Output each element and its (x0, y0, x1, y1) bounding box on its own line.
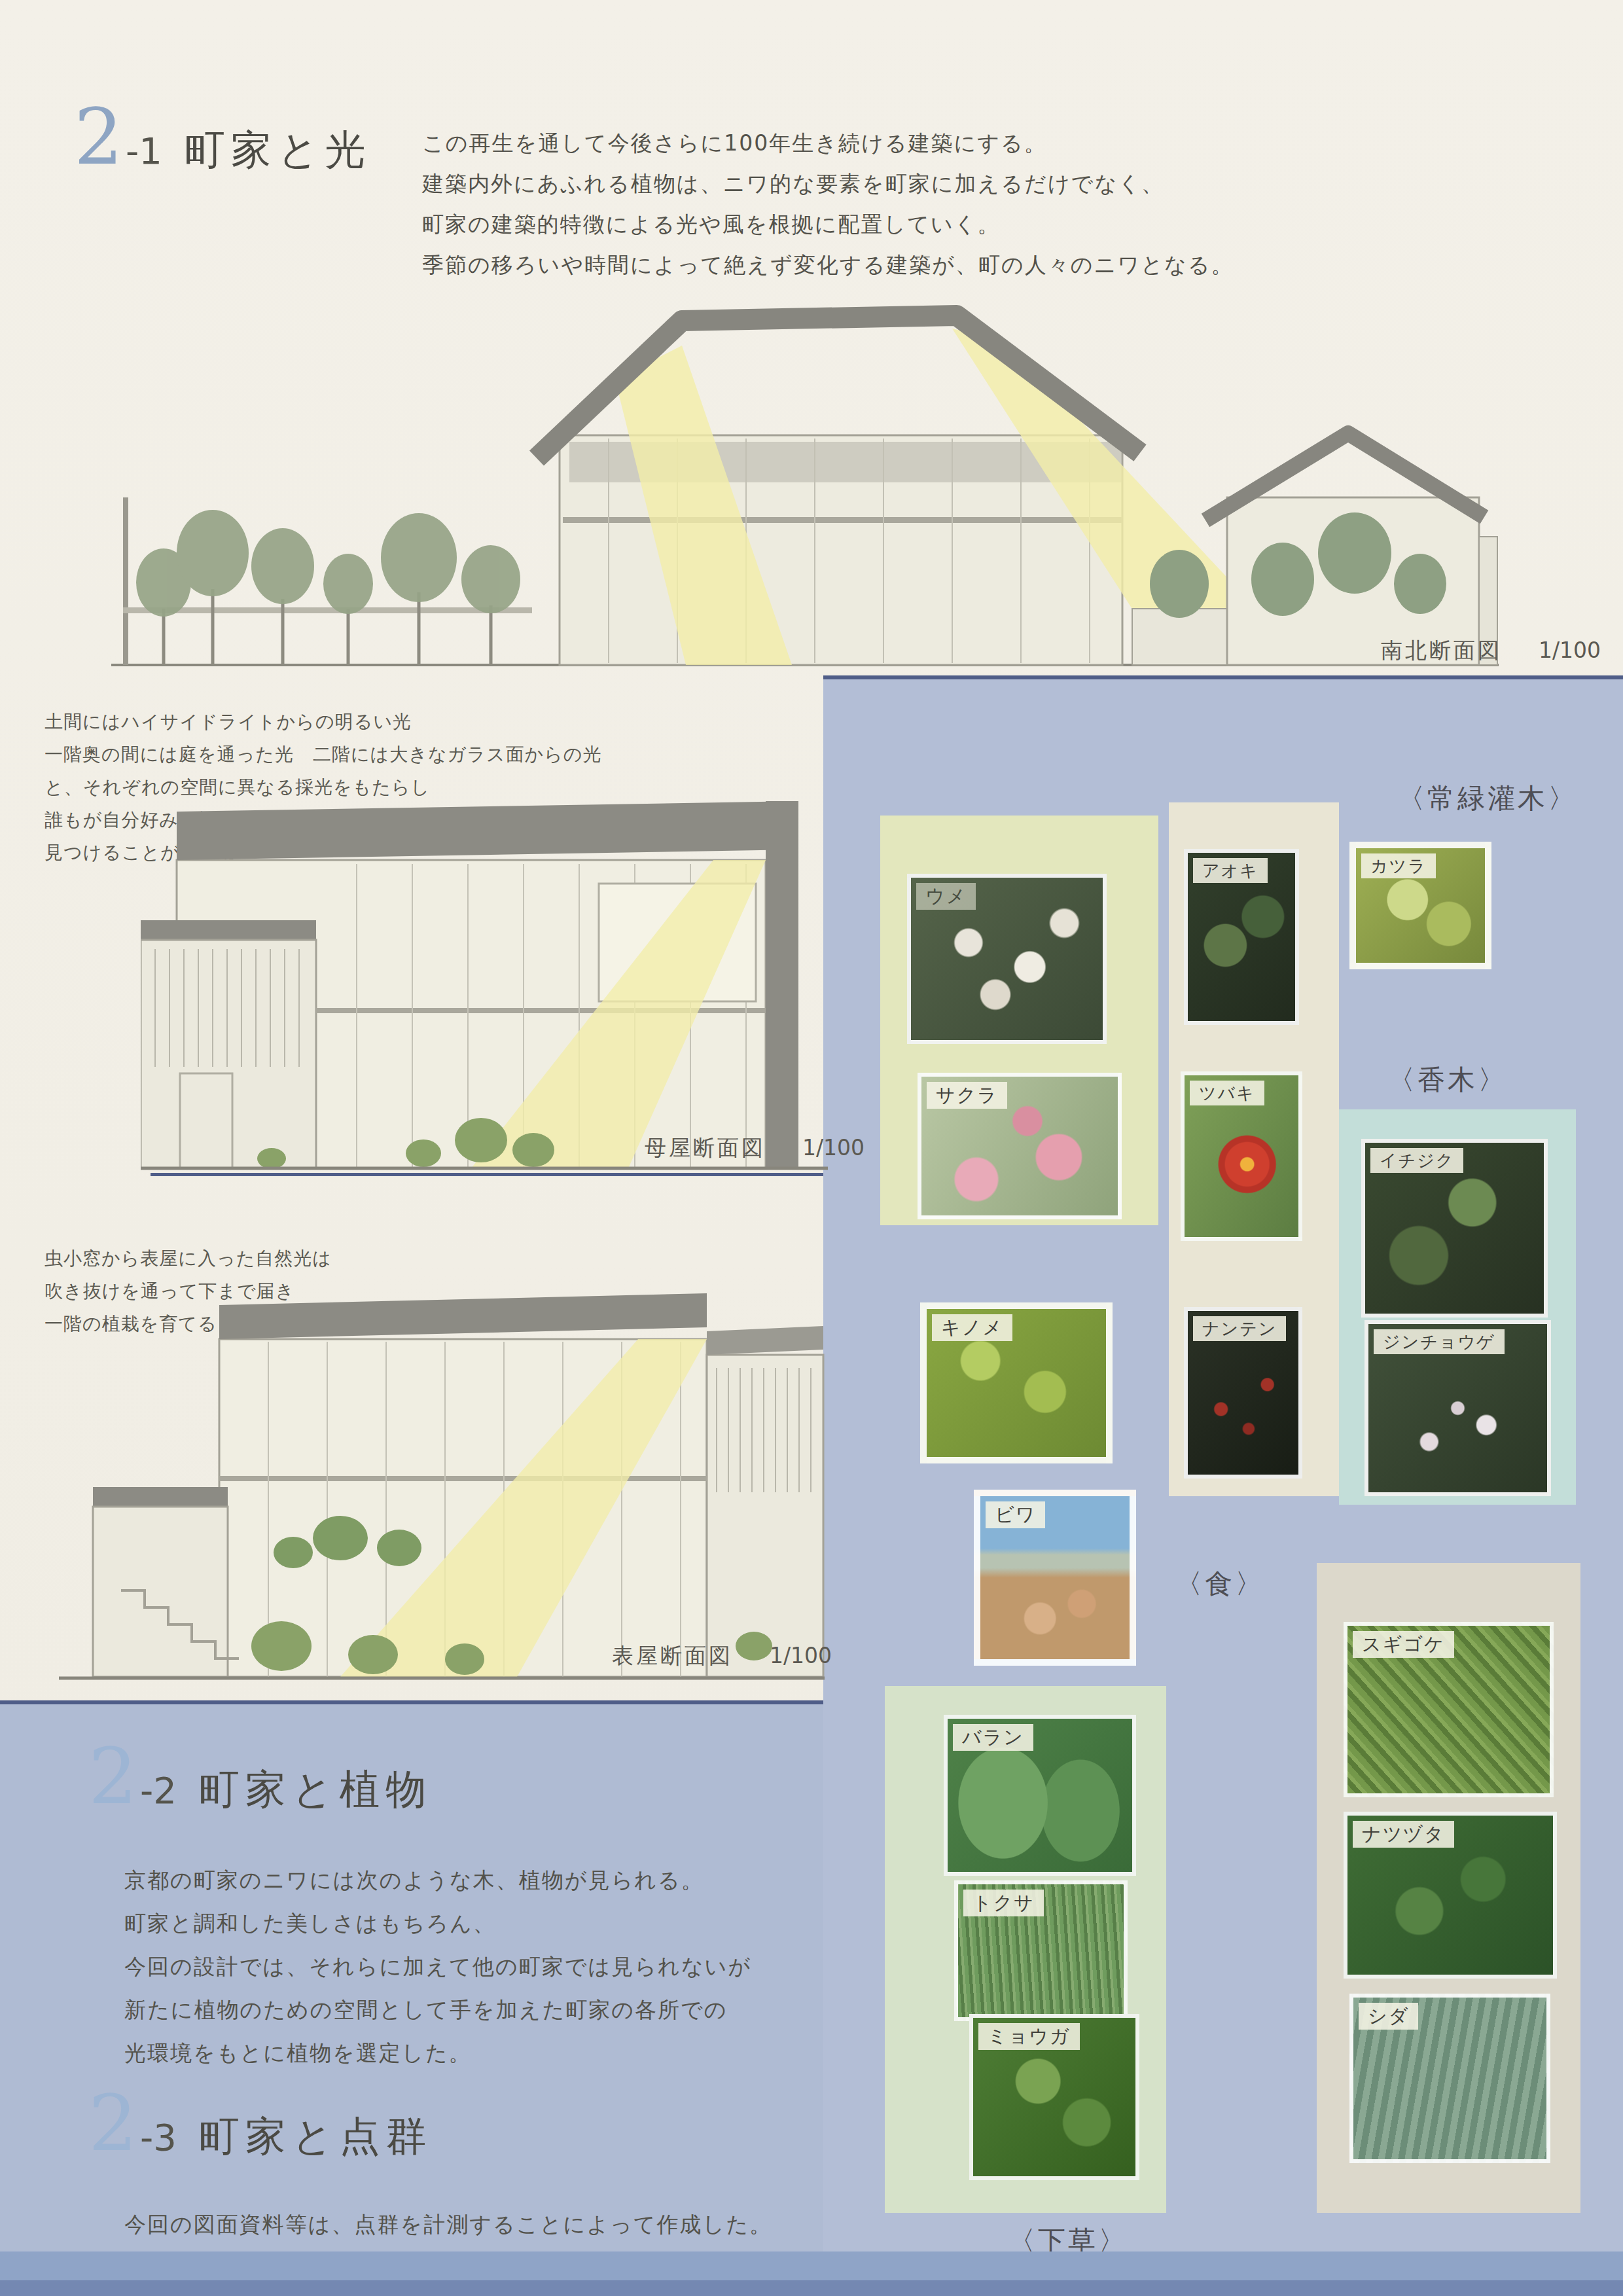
plant-photo-jinchoge: ジンチョウゲ (1364, 1320, 1551, 1496)
section-2-3-body: 今回の図面資料等は、点群を計測することによって作成した。 (124, 2204, 772, 2245)
plant-label: カツラ (1361, 853, 1436, 878)
paragraph-line: この再生を通して今後さらに100年生き続ける建築にする。 (422, 123, 1234, 164)
section-2-1-header: 2 -1 町家と光 (74, 98, 371, 177)
plant-photo-nanten: ナンテン (1184, 1307, 1302, 1479)
section-number-minor: -3 (140, 2116, 177, 2159)
plant-photo-ichijiku: イチジク (1361, 1139, 1548, 1318)
section-2-2-header: 2 -2 町家と植物 (88, 1738, 432, 1817)
caption-scale: 1/100 (1539, 637, 1601, 663)
section-title: 町家と植物 (199, 1762, 432, 1817)
category-fragrant-trees: 〈香木〉 (1387, 1062, 1508, 1098)
section-title: 町家と光 (185, 122, 371, 177)
section-drawing-omoteya (59, 1276, 825, 1702)
presentation-board: 2 -1 町家と光 この再生を通して今後さらに100年生き続ける建築にする。 建… (0, 0, 1623, 2296)
category-food: 〈食〉 (1175, 1566, 1265, 1602)
caption-name: 表屋断面図 (612, 1641, 733, 1671)
plant-label: ビワ (986, 1501, 1045, 1528)
plant-label: イチジク (1370, 1148, 1463, 1173)
plant-photo-sugigoke: スギゴケ (1344, 1622, 1554, 1797)
section-number-minor: -1 (126, 130, 162, 172)
plant-label: サクラ (927, 1082, 1007, 1109)
caption-name: 母屋断面図 (645, 1134, 766, 1163)
caption-scale: 1/100 (770, 1643, 832, 1668)
plant-label: ナツヅタ (1353, 1821, 1454, 1848)
plant-photo-katsura: カツラ (1349, 842, 1491, 969)
paragraph-line: 京都の町家のニワには次のような木、植物が見られる。 (124, 1859, 751, 1902)
paragraph-line: 町家の建築的特徴による光や風を根拠に配置していく。 (422, 204, 1234, 245)
plant-photo-baran: バラン (944, 1715, 1136, 1876)
caption-scale: 1/100 (802, 1135, 865, 1160)
plant-label: ツバキ (1190, 1081, 1264, 1105)
plant-photo-sakura: サクラ (918, 1073, 1122, 1219)
section-2-2-body: 京都の町家のニワには次のような木、植物が見られる。 町家と調和した美しさはもちろ… (124, 1859, 751, 2075)
plant-label: ナンテン (1193, 1316, 1286, 1341)
note-line: 虫小窓から表屋に入った自然光は (45, 1242, 332, 1275)
section-drawing-omoya (141, 792, 828, 1172)
section-number-major: 2 (88, 2085, 137, 2162)
plant-label: ウメ (916, 883, 976, 910)
plant-label: ミョウガ (978, 2023, 1080, 2050)
plant-photo-natsuzuta: ナツヅタ (1344, 1812, 1557, 1979)
plant-label: シダ (1359, 2003, 1418, 2030)
plant-photo-aoki: アオキ (1184, 849, 1299, 1025)
plant-photo-tokusa: トクサ (954, 1880, 1128, 2021)
paragraph-line: 今回の図面資料等は、点群を計測することによって作成した。 (124, 2204, 772, 2245)
drawing-caption-1: 南北断面図 1/100 (1381, 636, 1601, 666)
plant-photo-kinome: キノメ (920, 1302, 1113, 1463)
bottom-blue-strip-dark (0, 2280, 1623, 2296)
note-line: 土間にはハイサイドライトからの明るい光 (45, 706, 602, 738)
plant-photo-tsubaki: ツバキ (1181, 1071, 1302, 1241)
section-number-minor: -2 (140, 1769, 177, 1812)
caption-name: 南北断面図 (1381, 636, 1502, 666)
category-evergreen-shrubs: 〈常緑灌木〉 (1397, 780, 1578, 817)
paragraph-line: 建築内外にあふれる植物は、ニワ的な要素を町家に加えるだけでなく、 (422, 164, 1234, 204)
plant-label: キノメ (932, 1314, 1012, 1341)
drawing-caption-3: 表屋断面図 1/100 (612, 1641, 832, 1671)
section-title: 町家と点群 (199, 2109, 432, 2164)
section-2-3-header: 2 -3 町家と点群 (88, 2085, 432, 2164)
plant-photo-myoga: ミョウガ (969, 2014, 1139, 2180)
drawing-caption-2: 母屋断面図 1/100 (645, 1134, 865, 1163)
paragraph-line: 季節の移ろいや時間によって絶えず変化する建築が、町の人々のニワとなる。 (422, 245, 1234, 285)
plant-photo-shida: シダ (1349, 1994, 1550, 2163)
section-2-1-intro: この再生を通して今後さらに100年生き続ける建築にする。 建築内外にあふれる植物… (422, 123, 1234, 285)
paragraph-line: 今回の設計では、それらに加えて他の町家では見られないが (124, 1945, 751, 1988)
plant-photo-biwa: ビワ (974, 1490, 1136, 1666)
plant-label: スギゴケ (1353, 1631, 1454, 1658)
plant-label: ジンチョウゲ (1374, 1329, 1505, 1354)
section-number-major: 2 (88, 1738, 137, 1815)
plant-label: バラン (953, 1724, 1033, 1751)
bottom-blue-strip (0, 2251, 1623, 2280)
caption-underline-2 (151, 1173, 823, 1176)
plant-label: アオキ (1193, 858, 1268, 883)
section-drawing-south-north (111, 301, 1499, 677)
paragraph-line: 町家と調和した美しさはもちろん、 (124, 1902, 751, 1945)
plant-photo-ume: ウメ (907, 874, 1107, 1044)
section-number-major: 2 (74, 98, 123, 175)
paragraph-line: 光環境をもとに植物を選定した。 (124, 2032, 751, 2075)
paragraph-line: 新たに植物のための空間として手を加えた町家の各所での (124, 1988, 751, 2032)
plant-label: トクサ (963, 1890, 1044, 1916)
note-line: 一階奥の間には庭を通った光 二階には大きなガラス面からの光 (45, 738, 602, 771)
